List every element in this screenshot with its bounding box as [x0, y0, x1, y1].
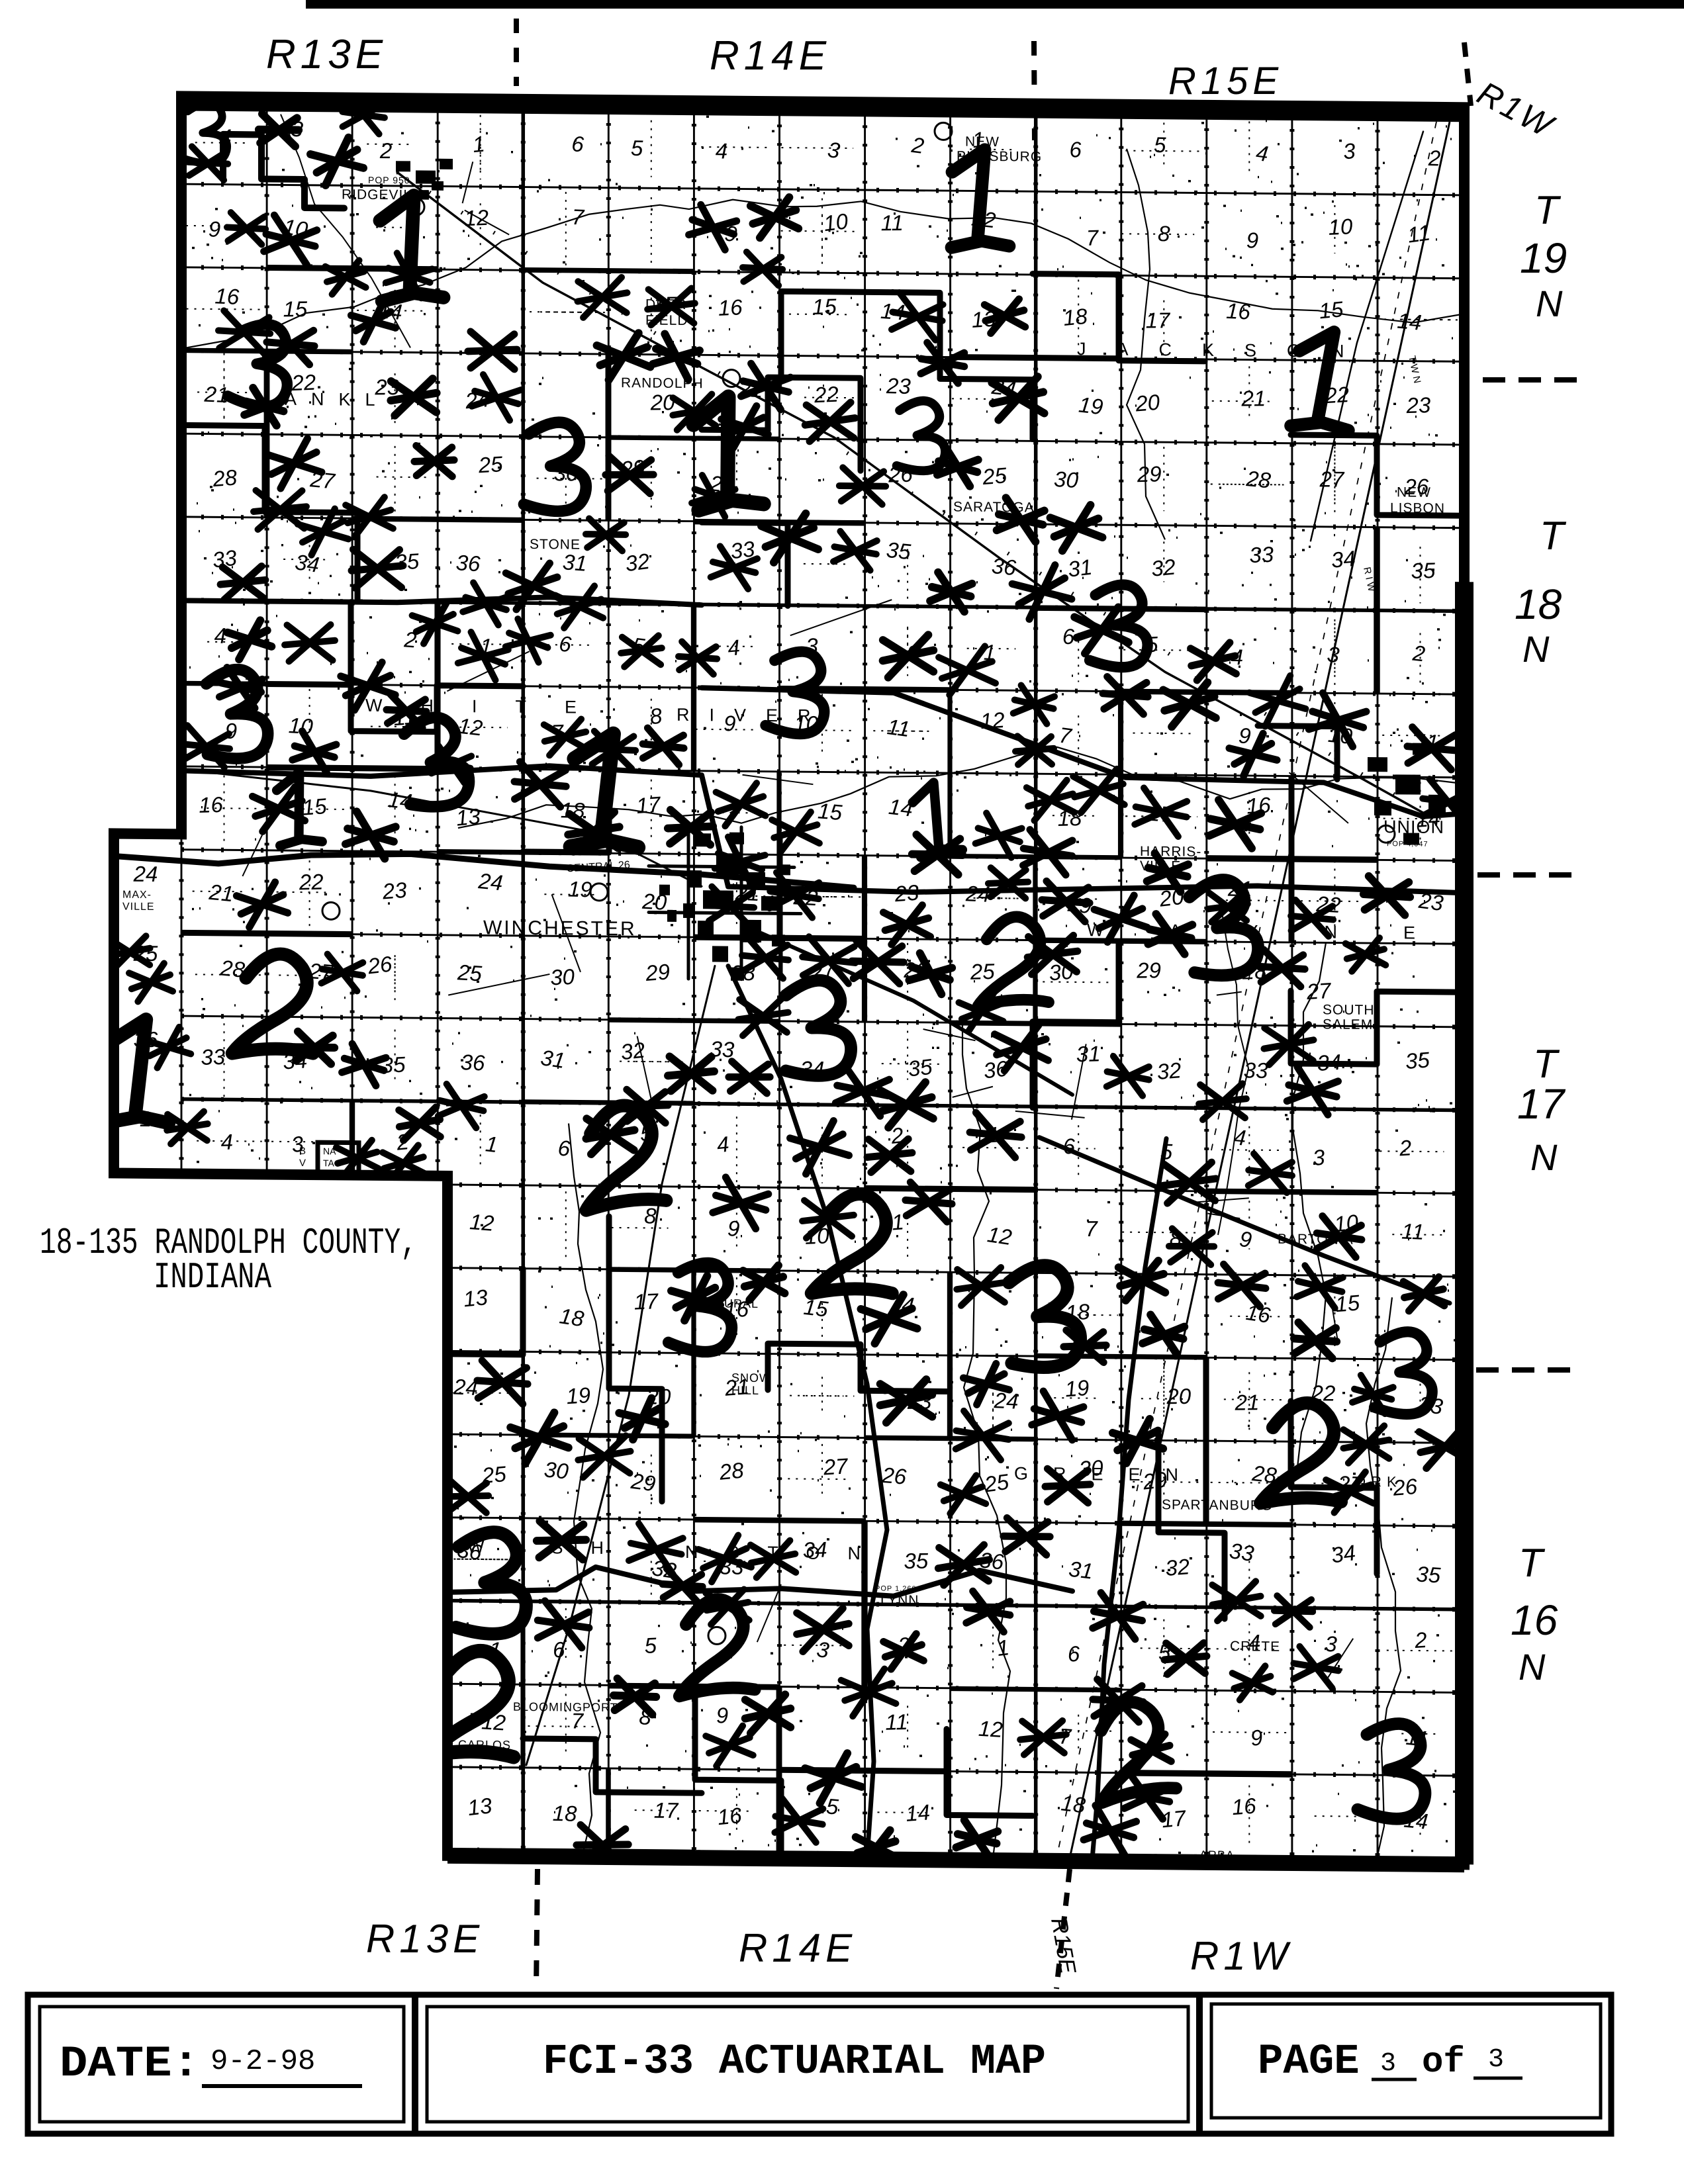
svg-text:28: 28 — [211, 465, 238, 491]
svg-text:1: 1 — [485, 1131, 499, 1157]
svg-text:18: 18 — [1515, 580, 1562, 628]
svg-text:25: 25 — [981, 463, 1008, 489]
svg-text:25: 25 — [456, 960, 483, 985]
svg-text:3: 3 — [1325, 1631, 1338, 1657]
svg-text:BLOOMINGPORT: BLOOMINGPORT — [513, 1700, 618, 1714]
svg-text:4: 4 — [716, 1132, 730, 1158]
svg-text:8: 8 — [644, 1203, 657, 1228]
svg-text:33: 33 — [1243, 1058, 1268, 1083]
svg-text:19: 19 — [568, 877, 592, 902]
svg-text:15: 15 — [301, 794, 328, 820]
svg-text:4: 4 — [214, 623, 226, 648]
svg-text:16: 16 — [1231, 1793, 1257, 1819]
svg-text:STONE: STONE — [530, 537, 581, 553]
svg-text:5: 5 — [631, 136, 644, 160]
svg-text:4: 4 — [220, 1130, 234, 1154]
svg-text:SOUTH: SOUTH — [1323, 1002, 1375, 1018]
svg-text:22: 22 — [813, 382, 839, 408]
svg-text:11: 11 — [1401, 1218, 1425, 1244]
svg-text:9: 9 — [209, 216, 221, 241]
svg-text:T: T — [1540, 514, 1567, 558]
svg-text:T: T — [1534, 188, 1562, 232]
svg-text:8: 8 — [1157, 221, 1170, 246]
svg-text:R14E: R14E — [739, 1926, 857, 1970]
svg-text:9: 9 — [1238, 723, 1252, 748]
svg-text:PAGE: PAGE — [1258, 2038, 1360, 2086]
svg-text:SARATOGA: SARATOGA — [953, 500, 1035, 516]
svg-text:30: 30 — [1053, 467, 1079, 492]
svg-text:33: 33 — [1248, 542, 1274, 568]
svg-text:6: 6 — [571, 131, 585, 156]
svg-text:17: 17 — [635, 792, 662, 818]
svg-text:15: 15 — [817, 798, 843, 825]
svg-text:4: 4 — [727, 635, 741, 660]
svg-text:34: 34 — [1316, 1050, 1342, 1075]
svg-text:2: 2 — [379, 138, 392, 163]
svg-text:12: 12 — [463, 205, 489, 231]
svg-text:N: N — [1519, 1646, 1546, 1688]
svg-text:POP 950: POP 950 — [368, 175, 410, 186]
svg-text:1: 1 — [471, 132, 486, 158]
svg-text:35: 35 — [1411, 558, 1436, 583]
svg-text:NEW: NEW — [1397, 484, 1431, 500]
svg-text:9: 9 — [716, 1703, 729, 1727]
svg-text:LYNN: LYNN — [880, 1593, 919, 1609]
svg-text:16: 16 — [716, 1803, 743, 1829]
svg-text:23: 23 — [1417, 888, 1446, 916]
svg-text:35: 35 — [906, 1054, 934, 1081]
svg-text:30: 30 — [549, 964, 575, 990]
svg-text:18: 18 — [1060, 1790, 1087, 1817]
svg-text:23: 23 — [381, 878, 408, 904]
svg-text:6: 6 — [557, 1136, 572, 1161]
svg-text:SALEM: SALEM — [1323, 1017, 1373, 1032]
svg-text:27: 27 — [1319, 467, 1345, 491]
svg-text:T: T — [1533, 1042, 1560, 1086]
svg-text:15: 15 — [1318, 296, 1345, 323]
svg-text:31: 31 — [539, 1045, 567, 1073]
svg-text:R13E: R13E — [366, 1917, 484, 1961]
svg-text:34: 34 — [1330, 546, 1356, 572]
svg-text:24: 24 — [133, 862, 158, 886]
svg-text:of: of — [1422, 2042, 1465, 2083]
svg-text:35: 35 — [1416, 1561, 1442, 1587]
svg-text:VILLE: VILLE — [122, 901, 155, 913]
svg-text:32: 32 — [1164, 1554, 1191, 1580]
svg-text:14: 14 — [1396, 308, 1423, 335]
svg-text:30: 30 — [543, 1457, 570, 1483]
svg-text:6: 6 — [1062, 1134, 1076, 1158]
svg-text:36: 36 — [991, 553, 1017, 580]
svg-text:31: 31 — [1076, 1041, 1101, 1066]
svg-text:9: 9 — [1246, 228, 1258, 252]
svg-text:17: 17 — [633, 1289, 660, 1314]
svg-text:32: 32 — [619, 1037, 646, 1064]
svg-text:2: 2 — [1428, 146, 1441, 170]
svg-text:ANKL: ANKL — [285, 389, 390, 410]
svg-text:N: N — [1522, 628, 1550, 670]
svg-text:3: 3 — [1488, 2045, 1504, 2075]
svg-text:6: 6 — [1068, 137, 1082, 162]
svg-text:6: 6 — [1067, 1641, 1080, 1666]
svg-text:14: 14 — [888, 794, 914, 821]
svg-text:24: 24 — [477, 868, 504, 895]
svg-text:T: T — [1519, 1541, 1546, 1585]
svg-text:2: 2 — [1398, 1135, 1413, 1160]
svg-text:16: 16 — [1511, 1596, 1558, 1644]
svg-text:34: 34 — [1330, 1540, 1358, 1567]
svg-text:23: 23 — [1405, 392, 1432, 418]
svg-text:36: 36 — [455, 550, 481, 576]
svg-text:14: 14 — [905, 1799, 931, 1826]
svg-text:31: 31 — [562, 549, 588, 576]
svg-text:10: 10 — [1328, 214, 1354, 240]
svg-text:MAX-: MAX- — [122, 889, 152, 901]
svg-text:36: 36 — [460, 1050, 486, 1075]
svg-text:R14E: R14E — [710, 33, 831, 79]
svg-text:R15E: R15E — [1168, 60, 1283, 103]
svg-text:N: N — [1536, 283, 1563, 324]
svg-text:35: 35 — [1404, 1047, 1430, 1073]
svg-text:R1W: R1W — [1190, 1934, 1292, 1978]
svg-text:LISBON: LISBON — [1390, 500, 1445, 516]
svg-text:18: 18 — [1062, 304, 1089, 330]
svg-text:4: 4 — [716, 138, 727, 163]
svg-text:N: N — [1530, 1136, 1558, 1178]
svg-text:16: 16 — [214, 283, 240, 309]
svg-text:16: 16 — [718, 295, 743, 320]
svg-text:6: 6 — [552, 1637, 567, 1662]
svg-text:23: 23 — [893, 880, 920, 906]
svg-text:32: 32 — [1150, 555, 1176, 581]
svg-text:27: 27 — [1305, 978, 1333, 1004]
svg-text:11: 11 — [886, 714, 912, 741]
svg-text:13: 13 — [466, 1793, 494, 1820]
svg-text:9-2-98: 9-2-98 — [210, 2045, 315, 2078]
svg-text:11: 11 — [880, 210, 904, 235]
svg-text:15: 15 — [812, 294, 837, 319]
svg-text:35: 35 — [904, 1549, 929, 1573]
svg-text:WINCHESTER: WINCHESTER — [483, 917, 637, 940]
svg-text:21: 21 — [1234, 1390, 1259, 1414]
svg-text:4: 4 — [1233, 1124, 1247, 1150]
svg-text:GREEN: GREEN — [1014, 1463, 1203, 1484]
svg-text:31: 31 — [1066, 555, 1094, 582]
svg-text:16: 16 — [1226, 298, 1252, 324]
svg-text:15: 15 — [283, 296, 308, 321]
svg-text:19: 19 — [565, 1383, 591, 1408]
svg-text:20: 20 — [1166, 1384, 1192, 1408]
svg-text:CRETE: CRETE — [1230, 1639, 1280, 1655]
svg-text:5: 5 — [1154, 132, 1167, 157]
svg-text:7: 7 — [571, 205, 585, 230]
svg-text:33: 33 — [201, 1044, 226, 1069]
svg-text:18: 18 — [552, 1801, 577, 1826]
svg-text:FCI-33 ACTUARIAL MAP: FCI-33 ACTUARIAL MAP — [543, 2038, 1046, 2086]
svg-text:2: 2 — [1411, 641, 1427, 666]
svg-text:25: 25 — [982, 1469, 1011, 1497]
svg-text:10: 10 — [822, 208, 850, 236]
svg-text:19: 19 — [1520, 234, 1567, 282]
svg-text:11: 11 — [885, 1709, 909, 1735]
svg-text:SNOW: SNOW — [731, 1371, 771, 1385]
svg-text:16: 16 — [199, 792, 224, 817]
svg-text:34: 34 — [294, 549, 321, 576]
svg-text:12: 12 — [980, 707, 1006, 733]
svg-text:HARRIS-: HARRIS- — [1140, 844, 1201, 860]
svg-text:26: 26 — [365, 951, 394, 978]
svg-text:17: 17 — [1145, 308, 1171, 332]
svg-text:12: 12 — [978, 1716, 1004, 1742]
svg-text:11: 11 — [1406, 220, 1432, 248]
svg-text:35: 35 — [885, 537, 912, 564]
svg-text:UNION: UNION — [1383, 817, 1444, 837]
svg-text:27: 27 — [822, 1453, 850, 1479]
svg-text:R13E: R13E — [266, 32, 387, 77]
svg-text:DATE:: DATE: — [60, 2039, 200, 2089]
svg-text:2: 2 — [1413, 1627, 1428, 1653]
svg-text:29: 29 — [1136, 461, 1162, 486]
svg-text:13: 13 — [462, 1285, 489, 1311]
svg-text:INDIANA: INDIANA — [154, 1256, 271, 1298]
svg-text:32: 32 — [1156, 1058, 1182, 1084]
svg-text:29: 29 — [644, 959, 671, 985]
svg-text:RIVER: RIVER — [677, 705, 831, 726]
svg-text:17: 17 — [654, 1798, 679, 1823]
svg-text:9: 9 — [727, 1216, 740, 1241]
svg-text:29: 29 — [1136, 958, 1161, 982]
svg-text:12: 12 — [986, 1222, 1013, 1250]
svg-text:7: 7 — [1085, 1216, 1099, 1241]
svg-text:24: 24 — [453, 1375, 479, 1400]
svg-text:17: 17 — [1517, 1080, 1566, 1128]
svg-text:25: 25 — [477, 451, 504, 477]
svg-text:22: 22 — [298, 869, 324, 894]
svg-text:20: 20 — [641, 889, 668, 915]
svg-text:5: 5 — [1160, 1139, 1174, 1163]
svg-text:19: 19 — [1064, 1375, 1090, 1402]
svg-text:20: 20 — [1134, 390, 1161, 416]
svg-text:18: 18 — [558, 1303, 586, 1331]
svg-text:7: 7 — [1086, 225, 1099, 250]
svg-text:28: 28 — [718, 1458, 745, 1485]
svg-text:20: 20 — [649, 390, 675, 414]
svg-text:23: 23 — [886, 373, 912, 398]
svg-text:6: 6 — [1062, 624, 1075, 649]
svg-text:POP 1,260: POP 1,260 — [875, 1585, 917, 1594]
svg-text:31: 31 — [1068, 1557, 1094, 1584]
svg-text:19: 19 — [1078, 392, 1104, 419]
svg-text:TA: TA — [323, 1158, 335, 1168]
svg-text:29: 29 — [629, 1469, 657, 1496]
svg-text:21: 21 — [208, 880, 235, 906]
svg-text:21: 21 — [1240, 386, 1266, 410]
svg-text:26: 26 — [880, 1463, 908, 1489]
svg-text:25: 25 — [969, 959, 996, 984]
svg-text:33: 33 — [1228, 1538, 1256, 1566]
svg-text:5: 5 — [644, 1633, 658, 1658]
svg-text:B: B — [299, 1146, 306, 1157]
svg-text:3: 3 — [1380, 2049, 1396, 2079]
svg-text:28: 28 — [1244, 466, 1272, 493]
svg-text:HILL: HILL — [731, 1384, 759, 1397]
svg-text:9: 9 — [225, 719, 238, 743]
svg-text:POP 4,047: POP 4,047 — [1387, 840, 1428, 848]
svg-text:12: 12 — [469, 1209, 494, 1236]
svg-text:V: V — [299, 1158, 306, 1169]
svg-text:32: 32 — [624, 549, 651, 576]
